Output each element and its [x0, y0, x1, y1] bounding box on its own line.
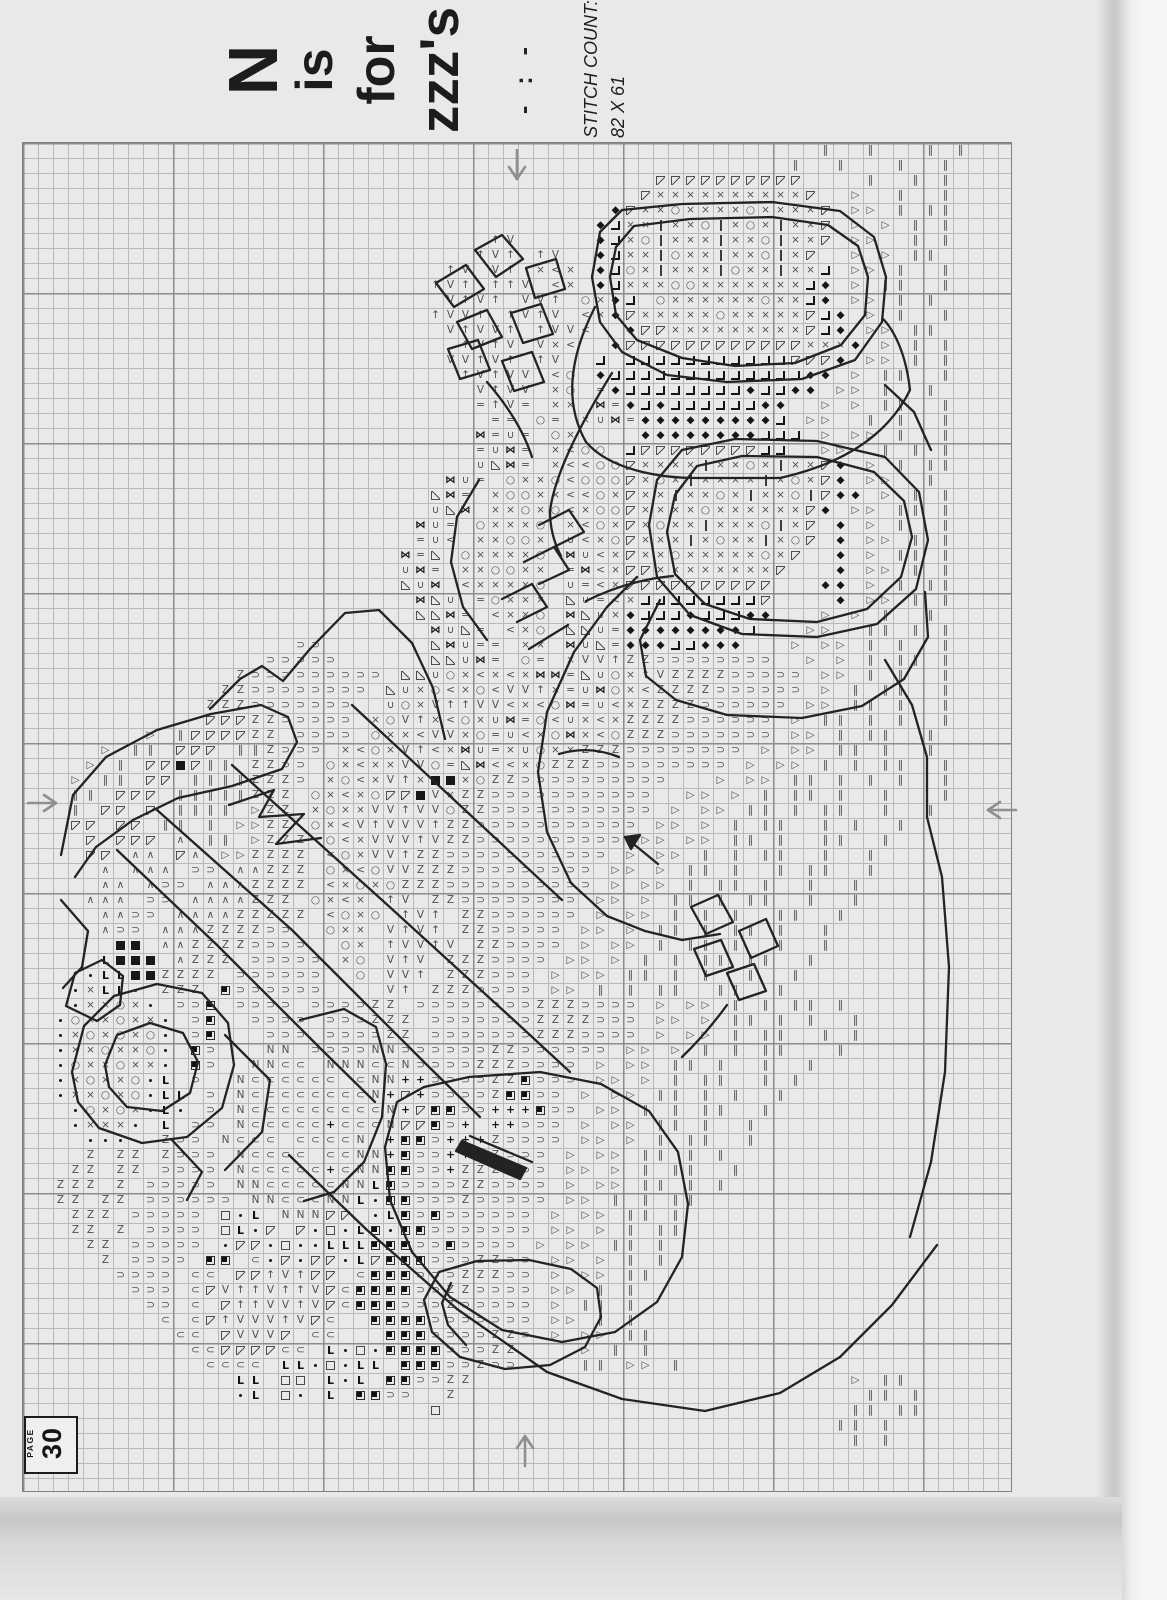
stitch-symbol: V — [503, 383, 518, 398]
stitch-symbol: ○ — [428, 758, 443, 773]
stitch-symbol: ◆ — [653, 638, 668, 653]
stitch-symbol: Z — [398, 1028, 413, 1043]
stitch-symbol: ‖ — [863, 773, 878, 788]
stitch-symbol: × — [518, 698, 533, 713]
stitch-symbol: L — [248, 1388, 263, 1403]
stitch-symbol: Z — [53, 1178, 68, 1193]
stitch-symbol — [398, 1088, 413, 1103]
stitch-symbol: ‖ — [233, 788, 248, 803]
stitch-symbol: ⊃ — [548, 1058, 563, 1073]
stitch-symbol: Z — [383, 1013, 398, 1028]
stitch-symbol: ‖ — [668, 1058, 683, 1073]
stitch-symbol: ▷ — [848, 263, 863, 278]
stitch-symbol: ⊃ — [338, 713, 353, 728]
stitch-symbol — [68, 1103, 83, 1118]
stitch-symbol: ⊃ — [518, 878, 533, 893]
stitch-symbol: ⊃ — [278, 938, 293, 953]
stitch-symbol: ∧ — [143, 878, 158, 893]
stitch-symbol: < — [578, 488, 593, 503]
stitch-symbol: ‖ — [578, 1298, 593, 1313]
stitch-symbol: ⊂ — [278, 1088, 293, 1103]
stitch-symbol: ‖ — [863, 143, 878, 158]
stitch-symbol — [398, 578, 413, 593]
stitch-symbol: ⊃ — [443, 998, 458, 1013]
stitch-symbol — [608, 233, 623, 248]
stitch-symbol: ‖ — [728, 908, 743, 923]
stitch-symbol — [293, 1388, 308, 1403]
stitch-symbol: ∧ — [113, 893, 128, 908]
stitch-symbol: ○ — [323, 758, 338, 773]
stitch-symbol: ‖ — [113, 758, 128, 773]
stitch-symbol: V — [413, 803, 428, 818]
stitch-symbol — [128, 953, 143, 968]
stitch-symbol: × — [578, 503, 593, 518]
stitch-symbol: ‖ — [623, 1268, 638, 1283]
stitch-symbol — [818, 218, 833, 233]
stitch-symbol: ↑ — [293, 1298, 308, 1313]
stitch-symbol — [413, 1313, 428, 1328]
stitch-symbol: × — [473, 548, 488, 563]
stitch-symbol — [413, 1133, 428, 1148]
stitch-symbol: ⊃ — [518, 1208, 533, 1223]
stitch-symbol: ‖ — [788, 908, 803, 923]
stitch-symbol — [773, 518, 788, 533]
stitch-symbol: Z — [173, 968, 188, 983]
stitch-symbol: × — [668, 518, 683, 533]
stitch-symbol: ‖ — [758, 998, 773, 1013]
stitch-symbol: ▷ — [563, 953, 578, 968]
stitch-symbol: N — [233, 1073, 248, 1088]
stitch-symbol — [398, 1133, 413, 1148]
stitch-symbol: < — [563, 488, 578, 503]
stitch-symbol: L — [233, 1373, 248, 1388]
stitch-symbol: × — [563, 743, 578, 758]
stitch-symbol: ∪ — [578, 593, 593, 608]
stitch-symbol: ‖ — [893, 458, 908, 473]
stitch-symbol: ○ — [68, 1013, 83, 1028]
stitch-symbol: ▷ — [623, 1058, 638, 1073]
stitch-symbol: ⊃ — [443, 1118, 458, 1133]
stitch-symbol: Z — [278, 863, 293, 878]
stitch-symbol: ⊃ — [458, 863, 473, 878]
stitch-symbol — [758, 353, 773, 368]
stitch-symbol — [428, 1403, 443, 1418]
stitch-symbol: × — [683, 563, 698, 578]
stitch-symbol — [803, 533, 818, 548]
stitch-symbol: ⊃ — [443, 1358, 458, 1373]
stitch-symbol: ⊃ — [263, 668, 278, 683]
stitch-symbol: V — [473, 698, 488, 713]
stitch-symbol: × — [548, 398, 563, 413]
stitch-symbol — [638, 383, 653, 398]
stitch-symbol — [143, 773, 158, 788]
stitch-symbol: < — [548, 278, 563, 293]
stitch-symbol: ‖ — [893, 818, 908, 833]
stitch-count-label: STITCH COUNT: — [578, 8, 605, 138]
stitch-symbol: ⊃ — [173, 1148, 188, 1163]
stitch-symbol: < — [518, 728, 533, 743]
stitch-symbol: ‖ — [893, 578, 908, 593]
stitch-symbol: ‖ — [668, 1193, 683, 1208]
stitch-symbol: ◆ — [698, 623, 713, 638]
stitch-symbol: ⊃ — [518, 893, 533, 908]
stitch-symbol: ⊃ — [563, 818, 578, 833]
stitch-symbol: Z — [443, 953, 458, 968]
stitch-symbol: ‖ — [728, 878, 743, 893]
stitch-symbol: ⊃ — [548, 818, 563, 833]
stitch-symbol: L — [158, 1118, 173, 1133]
stitch-symbol: ‖ — [893, 203, 908, 218]
stitch-symbol: ▷ — [683, 1028, 698, 1043]
stitch-symbol: Z — [593, 743, 608, 758]
stitch-symbol: × — [683, 548, 698, 563]
stitch-symbol: ‖ — [638, 1193, 653, 1208]
stitch-symbol — [83, 848, 98, 863]
stitch-symbol: ⊂ — [353, 1118, 368, 1133]
stitch-symbol — [143, 833, 158, 848]
stitch-symbol: ∪ — [503, 428, 518, 443]
stitch-symbol: ‖ — [713, 1178, 728, 1193]
stitch-symbol — [188, 758, 203, 773]
stitch-symbol: ⊃ — [578, 1043, 593, 1058]
stitch-symbol: × — [503, 608, 518, 623]
stitch-symbol: ∪ — [458, 638, 473, 653]
stitch-symbol — [113, 938, 128, 953]
stitch-symbol — [293, 1253, 308, 1268]
stitch-symbol: ⊃ — [503, 968, 518, 983]
stitch-symbol: ▷ — [608, 1118, 623, 1133]
stitch-symbol: ‖ — [788, 158, 803, 173]
stitch-symbol: × — [488, 518, 503, 533]
stitch-symbol — [623, 353, 638, 368]
stitch-symbol: ⊃ — [473, 1028, 488, 1043]
stitch-symbol: ⊃ — [518, 1268, 533, 1283]
stitch-symbol: ▷ — [548, 1268, 563, 1283]
stitch-symbol: Z — [653, 698, 668, 713]
stitch-symbol: ∧ — [143, 863, 158, 878]
stitch-symbol: ⊃ — [518, 1283, 533, 1298]
stitch-symbol: ‖ — [893, 308, 908, 323]
stitch-symbol: ⊃ — [668, 653, 683, 668]
stitch-symbol: ⊃ — [173, 1178, 188, 1193]
stitch-symbol: ○ — [653, 293, 668, 308]
stitch-symbol: ⊂ — [293, 1073, 308, 1088]
stitch-symbol — [743, 368, 758, 383]
stitch-symbol: ‖ — [908, 623, 923, 638]
stitch-symbol: Z — [608, 743, 623, 758]
stitch-symbol: ⊃ — [323, 1043, 338, 1058]
stitch-symbol: ⊃ — [473, 848, 488, 863]
stitch-symbol: Z — [488, 1073, 503, 1088]
stitch-symbol: Z — [638, 728, 653, 743]
stitch-symbol: ▷ — [638, 1073, 653, 1088]
stitch-symbol: = — [563, 563, 578, 578]
stitch-symbol: ○ — [548, 698, 563, 713]
stitch-symbol: = — [608, 398, 623, 413]
stitch-symbol: ○ — [473, 773, 488, 788]
stitch-symbol: ⊃ — [188, 1133, 203, 1148]
stitch-symbol: Z — [83, 1178, 98, 1193]
stitch-symbol: Z — [503, 1058, 518, 1073]
stitch-symbol: ▷ — [623, 848, 638, 863]
stitch-symbol: + — [458, 1118, 473, 1133]
stitch-symbol — [353, 1283, 368, 1298]
stitch-symbol: Z — [443, 833, 458, 848]
stitch-symbol: ‖ — [713, 878, 728, 893]
stitch-symbol: ▷ — [878, 248, 893, 263]
stitch-symbol — [158, 1058, 173, 1073]
stitch-symbol: Z — [473, 1268, 488, 1283]
stitch-symbol — [398, 1163, 413, 1178]
stitch-symbol: ▷ — [578, 1193, 593, 1208]
stitch-symbol: ▷ — [653, 998, 668, 1013]
stitch-symbol: ⊃ — [428, 1313, 443, 1328]
stitch-symbol — [413, 788, 428, 803]
stitch-symbol: ◆ — [758, 413, 773, 428]
stitch-symbol: ↑ — [278, 1283, 293, 1298]
stitch-symbol: ⊃ — [578, 818, 593, 833]
stitch-symbol — [188, 728, 203, 743]
stitch-symbol: ↑ — [533, 323, 548, 338]
stitch-symbol: = — [518, 428, 533, 443]
stitch-symbol: ▷ — [593, 968, 608, 983]
stitch-symbol: ‖ — [173, 728, 188, 743]
stitch-symbol: ↑ — [488, 383, 503, 398]
stitch-symbol: ⊃ — [578, 773, 593, 788]
stitch-symbol: ⋈ — [428, 578, 443, 593]
stitch-symbol: ⊃ — [473, 1073, 488, 1088]
stitch-symbol: = — [473, 593, 488, 608]
stitch-symbol: ⊂ — [278, 1118, 293, 1133]
stitch-symbol: ‖ — [653, 1133, 668, 1148]
stitch-symbol: ◆ — [683, 428, 698, 443]
stitch-symbol — [143, 1073, 158, 1088]
stitch-symbol: × — [758, 488, 773, 503]
stitch-symbol: × — [728, 473, 743, 488]
stitch-symbol: ‖ — [938, 698, 953, 713]
stitch-symbol: ▷ — [758, 773, 773, 788]
stitch-symbol: < — [323, 908, 338, 923]
stitch-symbol: ⊃ — [668, 758, 683, 773]
stitch-symbol — [803, 188, 818, 203]
stitch-symbol: ‖ — [728, 833, 743, 848]
stitch-symbol: ⊃ — [743, 698, 758, 713]
stitch-symbol: ∧ — [173, 953, 188, 968]
stitch-symbol: ▷ — [713, 803, 728, 818]
stitch-symbol: ⊂ — [308, 1328, 323, 1343]
stitch-symbol: ‖ — [188, 773, 203, 788]
stitch-symbol: ⊃ — [428, 1268, 443, 1283]
stitch-symbol: × — [68, 1073, 83, 1088]
stitch-symbol — [728, 353, 743, 368]
stitch-symbol: ⊂ — [323, 1313, 338, 1328]
stitch-symbol: × — [578, 413, 593, 428]
stitch-symbol: ○ — [533, 743, 548, 758]
stitch-symbol: + — [503, 1118, 518, 1133]
stitch-symbol: ▷ — [653, 833, 668, 848]
stitch-symbol: ▷ — [143, 728, 158, 743]
stitch-symbol: × — [788, 218, 803, 233]
stitch-symbol: ○ — [548, 428, 563, 443]
stitch-symbol: ▷ — [848, 203, 863, 218]
stitch-symbol: < — [578, 533, 593, 548]
stitch-symbol: × — [743, 548, 758, 563]
stitch-symbol: ⊃ — [548, 938, 563, 953]
stitch-symbol: ⊃ — [518, 833, 533, 848]
stitch-symbol: ‖ — [698, 1133, 713, 1148]
stitch-symbol: × — [383, 758, 398, 773]
stitch-symbol: ∪ — [428, 503, 443, 518]
stitch-symbol: ⊃ — [113, 1268, 128, 1283]
stitch-symbol: × — [713, 563, 728, 578]
stitch-symbol: ∪ — [488, 443, 503, 458]
stitch-symbol: ▷ — [578, 938, 593, 953]
stitch-symbol: Z — [458, 1178, 473, 1193]
stitch-symbol: ○ — [593, 518, 608, 533]
stitch-symbol: < — [353, 743, 368, 758]
stitch-symbol: ◆ — [833, 458, 848, 473]
stitch-symbol: × — [803, 263, 818, 278]
stitch-symbol: ‖ — [818, 863, 833, 878]
stitch-symbol: V — [263, 1298, 278, 1313]
stitch-symbol: ⊃ — [548, 833, 563, 848]
stitch-symbol: ⊃ — [698, 698, 713, 713]
stitch-symbol: ▷ — [593, 1208, 608, 1223]
stitch-symbol: V — [458, 263, 473, 278]
stitch-symbol — [713, 368, 728, 383]
stitch-symbol: ▷ — [608, 1073, 623, 1088]
stitch-symbol: V — [398, 713, 413, 728]
stitch-symbol: ⊂ — [293, 1343, 308, 1358]
stitch-symbol: ⊃ — [248, 683, 263, 698]
stitch-symbol: ‖ — [893, 188, 908, 203]
stitch-symbol — [203, 1013, 218, 1028]
stitch-symbol: ‖ — [893, 398, 908, 413]
stitch-symbol: ⊃ — [683, 713, 698, 728]
stitch-symbol: ⊃ — [128, 1283, 143, 1298]
stitch-symbol: ⊃ — [188, 1028, 203, 1043]
stitch-symbol: ⊃ — [728, 698, 743, 713]
stitch-symbol: = — [548, 413, 563, 428]
stitch-symbol — [98, 803, 113, 818]
stitch-symbol: × — [113, 1118, 128, 1133]
stitch-symbol: ▷ — [98, 743, 113, 758]
stitch-symbol: ‖ — [728, 1163, 743, 1178]
stitch-symbol: ⊂ — [248, 1118, 263, 1133]
stitch-symbol: V — [383, 983, 398, 998]
stitch-symbol: × — [503, 593, 518, 608]
stitch-symbol: × — [713, 458, 728, 473]
stitch-symbol: N — [368, 1043, 383, 1058]
stitch-symbol: ⊃ — [728, 728, 743, 743]
stitch-symbol: ‖ — [668, 923, 683, 938]
stitch-symbol: ‖ — [803, 773, 818, 788]
stitch-symbol — [683, 173, 698, 188]
stitch-symbol: ‖ — [833, 908, 848, 923]
stitch-symbol: ↑ — [473, 248, 488, 263]
stitch-symbol: ↑ — [428, 308, 443, 323]
stitch-symbol: V — [293, 1313, 308, 1328]
stitch-symbol: ‖ — [758, 788, 773, 803]
stitch-symbol: ⊂ — [263, 1148, 278, 1163]
stitch-symbol: ▷ — [638, 893, 653, 908]
stitch-symbol: ▷ — [563, 1178, 578, 1193]
stitch-symbol: ↑ — [503, 278, 518, 293]
stitch-symbol: ▷ — [788, 713, 803, 728]
stitch-symbol: ‖ — [713, 1103, 728, 1118]
stitch-symbol: ⊃ — [533, 803, 548, 818]
stitch-symbol: ○ — [668, 248, 683, 263]
stitch-symbol: ⊃ — [683, 743, 698, 758]
stitch-symbol: ⊃ — [293, 1028, 308, 1043]
stitch-symbol: ∪ — [458, 653, 473, 668]
stitch-symbol: ⊂ — [338, 1133, 353, 1148]
stitch-symbol: ○ — [308, 818, 323, 833]
stitch-symbol: V — [443, 938, 458, 953]
stitch-symbol — [428, 488, 443, 503]
stitch-symbol: N — [383, 1073, 398, 1088]
stitch-symbol — [143, 968, 158, 983]
stitch-symbol: ▷ — [623, 863, 638, 878]
stitch-symbol — [53, 1043, 68, 1058]
stitch-symbol: ‖ — [833, 158, 848, 173]
stitch-symbol: L — [353, 1373, 368, 1388]
stitch-symbol: × — [698, 548, 713, 563]
stitch-symbol: V — [233, 1313, 248, 1328]
stitch-symbol: ▷ — [863, 548, 878, 563]
stitch-symbol: ‖ — [683, 1163, 698, 1178]
stitch-symbol: ⊃ — [443, 1073, 458, 1088]
stitch-symbol: ⋈ — [503, 443, 518, 458]
stitch-symbol — [308, 1238, 323, 1253]
stitch-symbol: × — [98, 1028, 113, 1043]
stitch-symbol: ⊃ — [218, 1193, 233, 1208]
stitch-symbol — [728, 383, 743, 398]
stitch-symbol: ◆ — [848, 488, 863, 503]
stitch-symbol: × — [668, 503, 683, 518]
stitch-symbol: ‖ — [938, 428, 953, 443]
stitch-symbol: ‖ — [203, 788, 218, 803]
stitch-symbol: V — [653, 668, 668, 683]
stitch-symbol — [398, 1358, 413, 1373]
stitch-symbol: ◆ — [773, 398, 788, 413]
stitch-symbol: ⊃ — [518, 938, 533, 953]
stitch-symbol: ⊃ — [503, 1298, 518, 1313]
stitch-symbol: ○ — [683, 278, 698, 293]
stitch-symbol: × — [638, 203, 653, 218]
stitch-symbol: × — [668, 458, 683, 473]
stitch-symbol — [398, 1343, 413, 1358]
stitch-symbol: < — [578, 323, 593, 338]
stitch-symbol: ▷ — [803, 728, 818, 743]
stitch-symbol — [383, 1373, 398, 1388]
stitch-symbol: ‖ — [698, 863, 713, 878]
stitch-symbol: ⊃ — [143, 893, 158, 908]
stitch-symbol: × — [713, 188, 728, 203]
stitch-symbol: × — [443, 788, 458, 803]
stitch-symbol: ⊃ — [308, 683, 323, 698]
stitch-symbol: ‖ — [713, 983, 728, 998]
stitch-symbol: ‖ — [68, 788, 83, 803]
stitch-symbol — [188, 1058, 203, 1073]
stitch-symbol — [578, 668, 593, 683]
stitch-symbol: Z — [413, 878, 428, 893]
stitch-symbol: ↑ — [248, 1283, 263, 1298]
stitch-symbol: ○ — [338, 773, 353, 788]
stitch-symbol: ∪ — [578, 683, 593, 698]
stitch-symbol: N — [218, 1133, 233, 1148]
stitch-symbol: × — [413, 683, 428, 698]
